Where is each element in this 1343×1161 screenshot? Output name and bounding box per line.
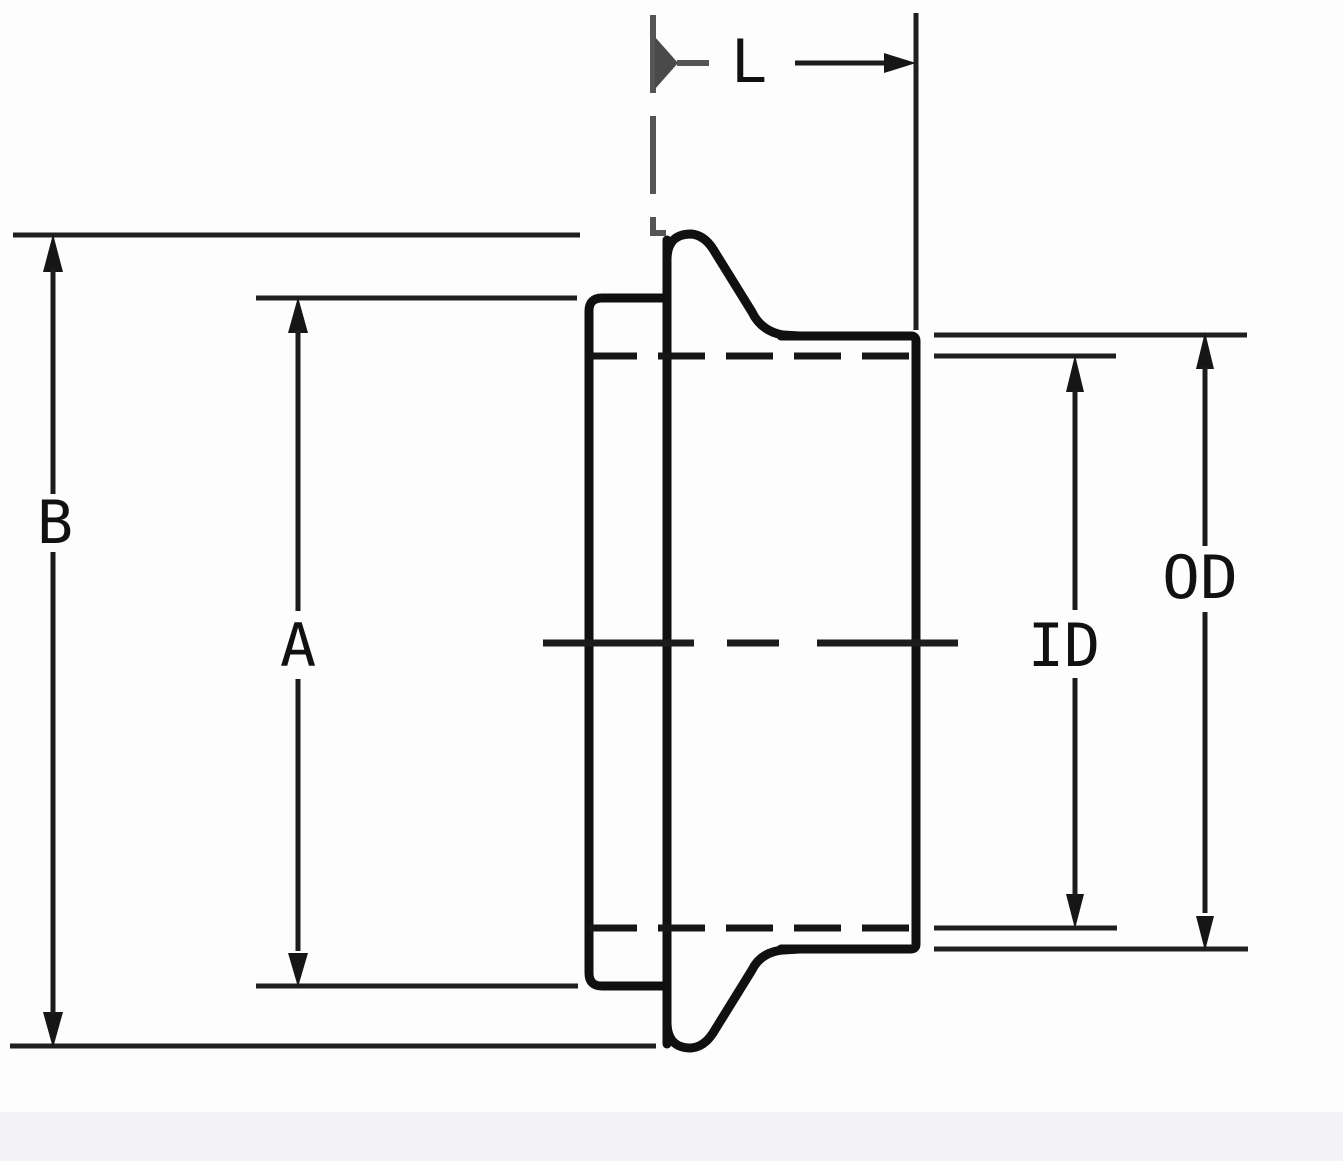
l-arrowhead-right — [884, 53, 916, 73]
id-arrowhead-down — [1066, 894, 1084, 929]
od-arrowhead-up — [1196, 332, 1214, 369]
technical-drawing-canvas: L B A ID — [0, 0, 1343, 1161]
a-label: A — [280, 611, 316, 681]
flange-bottom-profile — [667, 949, 800, 1048]
dimension-a: A — [256, 297, 578, 987]
flange-top-profile — [667, 234, 800, 336]
b-arrowhead-down — [43, 1012, 63, 1048]
a-arrowhead-down — [288, 953, 308, 987]
b-arrowhead-up — [43, 234, 63, 272]
dimension-l: L — [650, 13, 916, 330]
id-arrowhead-up — [1066, 355, 1084, 392]
od-label: OD — [1162, 543, 1238, 613]
part-outline — [543, 234, 958, 1048]
b-label: B — [37, 488, 73, 558]
dimension-id: ID — [934, 355, 1117, 929]
od-arrowhead-down — [1196, 916, 1214, 951]
a-arrowhead-up — [288, 297, 308, 333]
bottom-margin-band — [0, 1112, 1343, 1161]
l-label: L — [731, 27, 767, 97]
ferrule-dimension-diagram: L B A ID — [0, 0, 1343, 1161]
id-label: ID — [1028, 611, 1100, 681]
l-arrowhead-left — [655, 37, 678, 89]
